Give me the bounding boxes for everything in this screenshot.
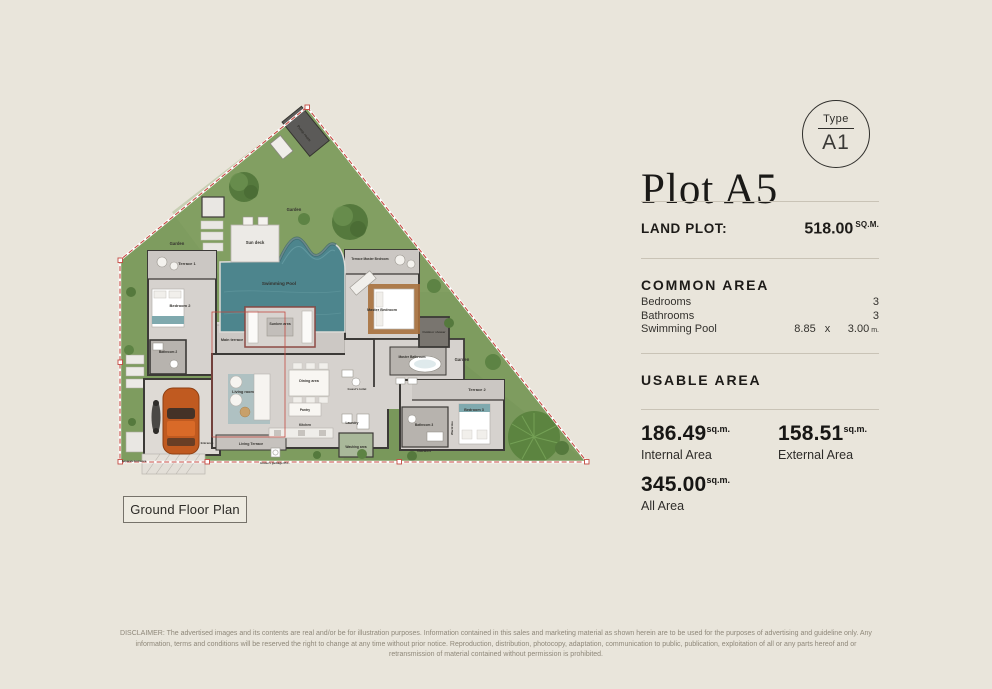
bedroom-2-label: Bedroom 2 xyxy=(170,303,192,308)
divider xyxy=(641,201,879,202)
pool-unit: m. xyxy=(871,324,879,338)
garden-label-bottom: Garden xyxy=(417,448,432,453)
land-plot-label: LAND PLOT: xyxy=(641,221,727,236)
internal-area-label: Internal Area xyxy=(641,448,771,462)
garden-label-top: Garden xyxy=(287,207,302,212)
pool-times: x xyxy=(825,323,831,337)
bedrooms-label: Bedrooms xyxy=(641,296,691,310)
external-area-unit: sq.m. xyxy=(843,424,867,434)
bathrooms-value: 3 xyxy=(873,310,879,324)
plan-caption-text: Ground Floor Plan xyxy=(130,502,240,517)
disclaimer: DISCLAIMER: The advertised images and it… xyxy=(116,629,876,661)
sunken-seating xyxy=(245,307,315,347)
internal-area-unit: sq.m. xyxy=(706,424,730,434)
external-area-stat: 158.51sq.m. External Area xyxy=(778,423,908,462)
external-area-value: 158.51sq.m. xyxy=(778,423,908,444)
terrace-2-label: Terrace 2 xyxy=(468,387,486,392)
divider xyxy=(641,258,879,259)
type-badge-value: A1 xyxy=(822,131,850,155)
sunken-area-label: Sunken area xyxy=(269,322,291,326)
internal-area-stat: 186.49sq.m. Internal Area xyxy=(641,423,771,462)
bathrooms-row: Bathrooms 3 xyxy=(641,310,879,324)
external-area-label: External Area xyxy=(778,448,908,462)
divider xyxy=(641,409,879,410)
type-badge-divider xyxy=(818,128,854,129)
living-terrace-label: Living Terrace xyxy=(239,442,263,446)
page-title: Plot A5 xyxy=(641,168,778,211)
separate-entrance-label: Separate Entrance xyxy=(122,459,147,463)
swimming-pool-label: Swimming Pool xyxy=(262,281,296,286)
pool-width: 8.85 xyxy=(786,323,816,337)
bathroom-3-label: Bathroom 3 xyxy=(415,423,433,427)
usable-area-heading: USABLE AREA xyxy=(641,372,761,388)
all-area-label: All Area xyxy=(641,499,771,513)
outdoor-shower-label: Outdoor shower xyxy=(422,330,446,334)
stepping-stones xyxy=(201,197,224,251)
land-plot-unit: SQ.M. xyxy=(855,220,879,229)
guests-toilet-label: Guest's toilet xyxy=(348,387,367,391)
pantry-label: Pantry xyxy=(300,408,310,412)
terrace-master-bedroom-label: Terrace Master Bedroom xyxy=(351,257,388,261)
info-panel: Plot A5 Type A1 LAND PLOT: 518.00SQ.M. C… xyxy=(641,0,879,689)
laundry-label: Laundry xyxy=(345,421,358,425)
driveway xyxy=(142,454,205,474)
kitchen-label: Kitchen xyxy=(299,423,311,427)
internal-area-value: 186.49sq.m. xyxy=(641,423,771,444)
common-area-rows: Bedrooms 3 Bathrooms 3 Swimming Pool 8.8… xyxy=(641,296,879,338)
master-bathroom-label: Master Bathroom xyxy=(398,355,425,359)
pool-length: 3.00 xyxy=(839,323,869,337)
terrace-1-label: Terrace 1 xyxy=(178,261,196,266)
common-area-heading: COMMON AREA xyxy=(641,277,769,293)
garden-label-left: Garden xyxy=(170,241,185,246)
divider xyxy=(641,353,879,354)
swimming-pool-label: Swimming Pool xyxy=(641,323,717,338)
garbage-label: House's garbage 65 L. xyxy=(260,461,290,465)
page: Pump room Garden Garden Garden Garden Su… xyxy=(0,0,992,689)
land-plot-row: LAND PLOT: 518.00SQ.M. xyxy=(641,220,879,238)
wardrobe-label: Wardrobe xyxy=(450,421,454,435)
garden-label-right: Garden xyxy=(455,357,470,362)
master-bedroom-label: Master Bedroom xyxy=(367,308,398,312)
type-badge-label: Type xyxy=(823,113,849,125)
swimming-pool-row: Swimming Pool 8.85 x 3.00 m. xyxy=(641,323,879,338)
entrance-label: Entrance xyxy=(201,441,214,445)
land-plot-value: 518.00SQ.M. xyxy=(804,220,879,238)
floor-plan: Pump room Garden Garden Garden Garden Su… xyxy=(112,92,602,482)
main-terrace-label: Main terrace xyxy=(221,338,243,342)
type-badge: Type A1 xyxy=(802,100,870,168)
washing-area-label: Washing area xyxy=(345,445,366,449)
plan-caption: Ground Floor Plan xyxy=(123,496,247,523)
all-area-stat: 345.00sq.m. All Area xyxy=(641,474,771,513)
all-area-unit: sq.m. xyxy=(706,475,730,485)
sun-deck-label: Sun deck xyxy=(246,240,265,245)
bathroom-2-label: Bathroom 2 xyxy=(159,350,177,354)
living-room-label: Living room xyxy=(232,390,254,394)
bedroom-3-label: Bedroom 3 xyxy=(464,408,484,412)
bedrooms-value: 3 xyxy=(873,296,879,310)
bedrooms-row: Bedrooms 3 xyxy=(641,296,879,310)
swimming-pool-dimensions: 8.85 x 3.00 m. xyxy=(786,323,879,338)
dining-area-label: Dining area xyxy=(299,379,320,383)
bathrooms-label: Bathrooms xyxy=(641,310,694,324)
all-area-value: 345.00sq.m. xyxy=(641,474,771,495)
